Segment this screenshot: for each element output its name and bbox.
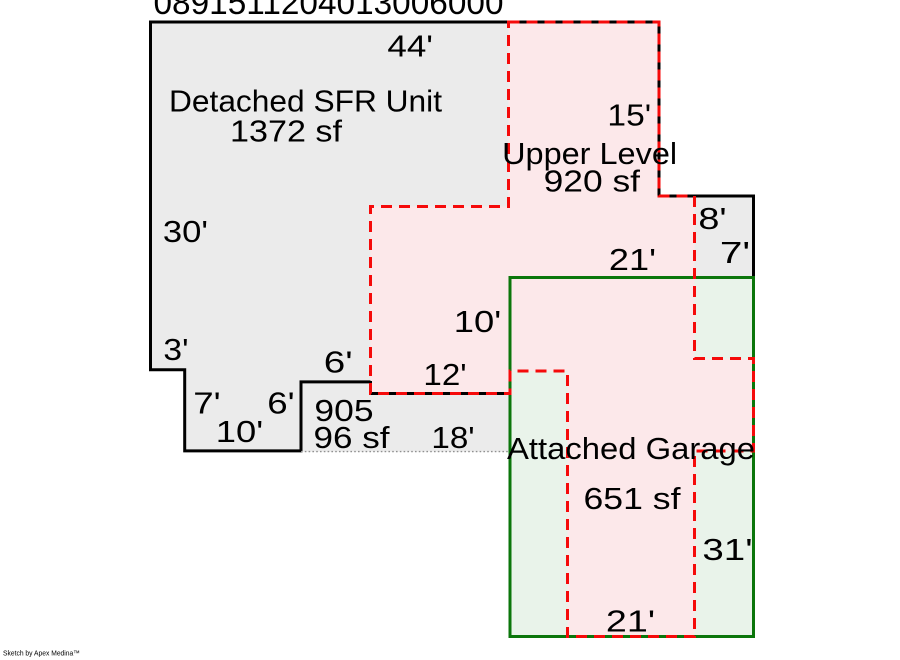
svg-text:Sketch by Apex Medina™: Sketch by Apex Medina™ xyxy=(3,649,80,658)
svg-text:1372 sf: 1372 sf xyxy=(230,114,342,149)
svg-text:7': 7' xyxy=(720,235,750,270)
svg-text:6': 6' xyxy=(324,345,353,380)
svg-text:44': 44' xyxy=(387,29,433,64)
svg-text:8': 8' xyxy=(698,201,726,236)
svg-text:3': 3' xyxy=(163,332,188,367)
svg-text:10': 10' xyxy=(216,414,263,449)
svg-text:21': 21' xyxy=(606,604,655,639)
svg-text:0891511204013006000: 0891511204013006000 xyxy=(154,0,504,21)
svg-text:6': 6' xyxy=(267,386,294,421)
svg-text:15': 15' xyxy=(607,98,651,133)
svg-text:651 sf: 651 sf xyxy=(584,481,681,516)
svg-text:10': 10' xyxy=(454,304,501,339)
svg-text:920 sf: 920 sf xyxy=(544,164,641,199)
svg-text:12': 12' xyxy=(423,357,466,392)
svg-text:96 sf: 96 sf xyxy=(314,420,390,455)
svg-text:Attached Garage: Attached Garage xyxy=(507,431,755,466)
svg-text:21': 21' xyxy=(609,242,656,277)
svg-text:31': 31' xyxy=(702,532,752,567)
svg-text:18': 18' xyxy=(431,420,474,455)
svg-text:30': 30' xyxy=(163,214,208,249)
